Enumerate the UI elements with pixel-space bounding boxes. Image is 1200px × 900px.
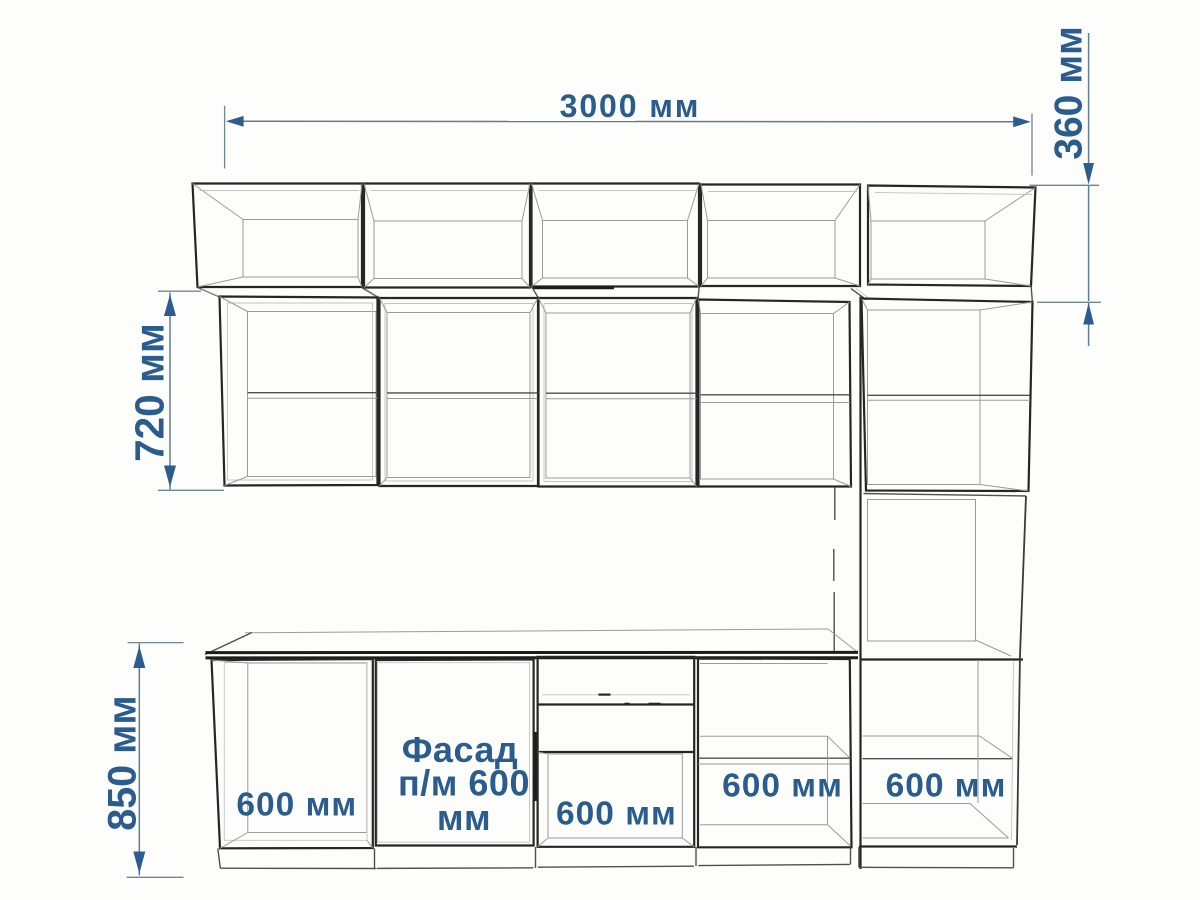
svg-text:мм: мм bbox=[437, 797, 491, 838]
svg-text:360 мм: 360 мм bbox=[1048, 26, 1091, 160]
svg-text:3000 мм: 3000 мм bbox=[560, 88, 701, 124]
svg-text:600 мм: 600 мм bbox=[556, 796, 677, 833]
svg-text:600 мм: 600 мм bbox=[236, 787, 357, 824]
svg-text:850 мм: 850 мм bbox=[101, 695, 145, 830]
svg-text:720 мм: 720 мм bbox=[126, 323, 172, 462]
svg-text:600 мм: 600 мм bbox=[722, 768, 843, 805]
svg-text:600 мм: 600 мм bbox=[886, 768, 1007, 805]
